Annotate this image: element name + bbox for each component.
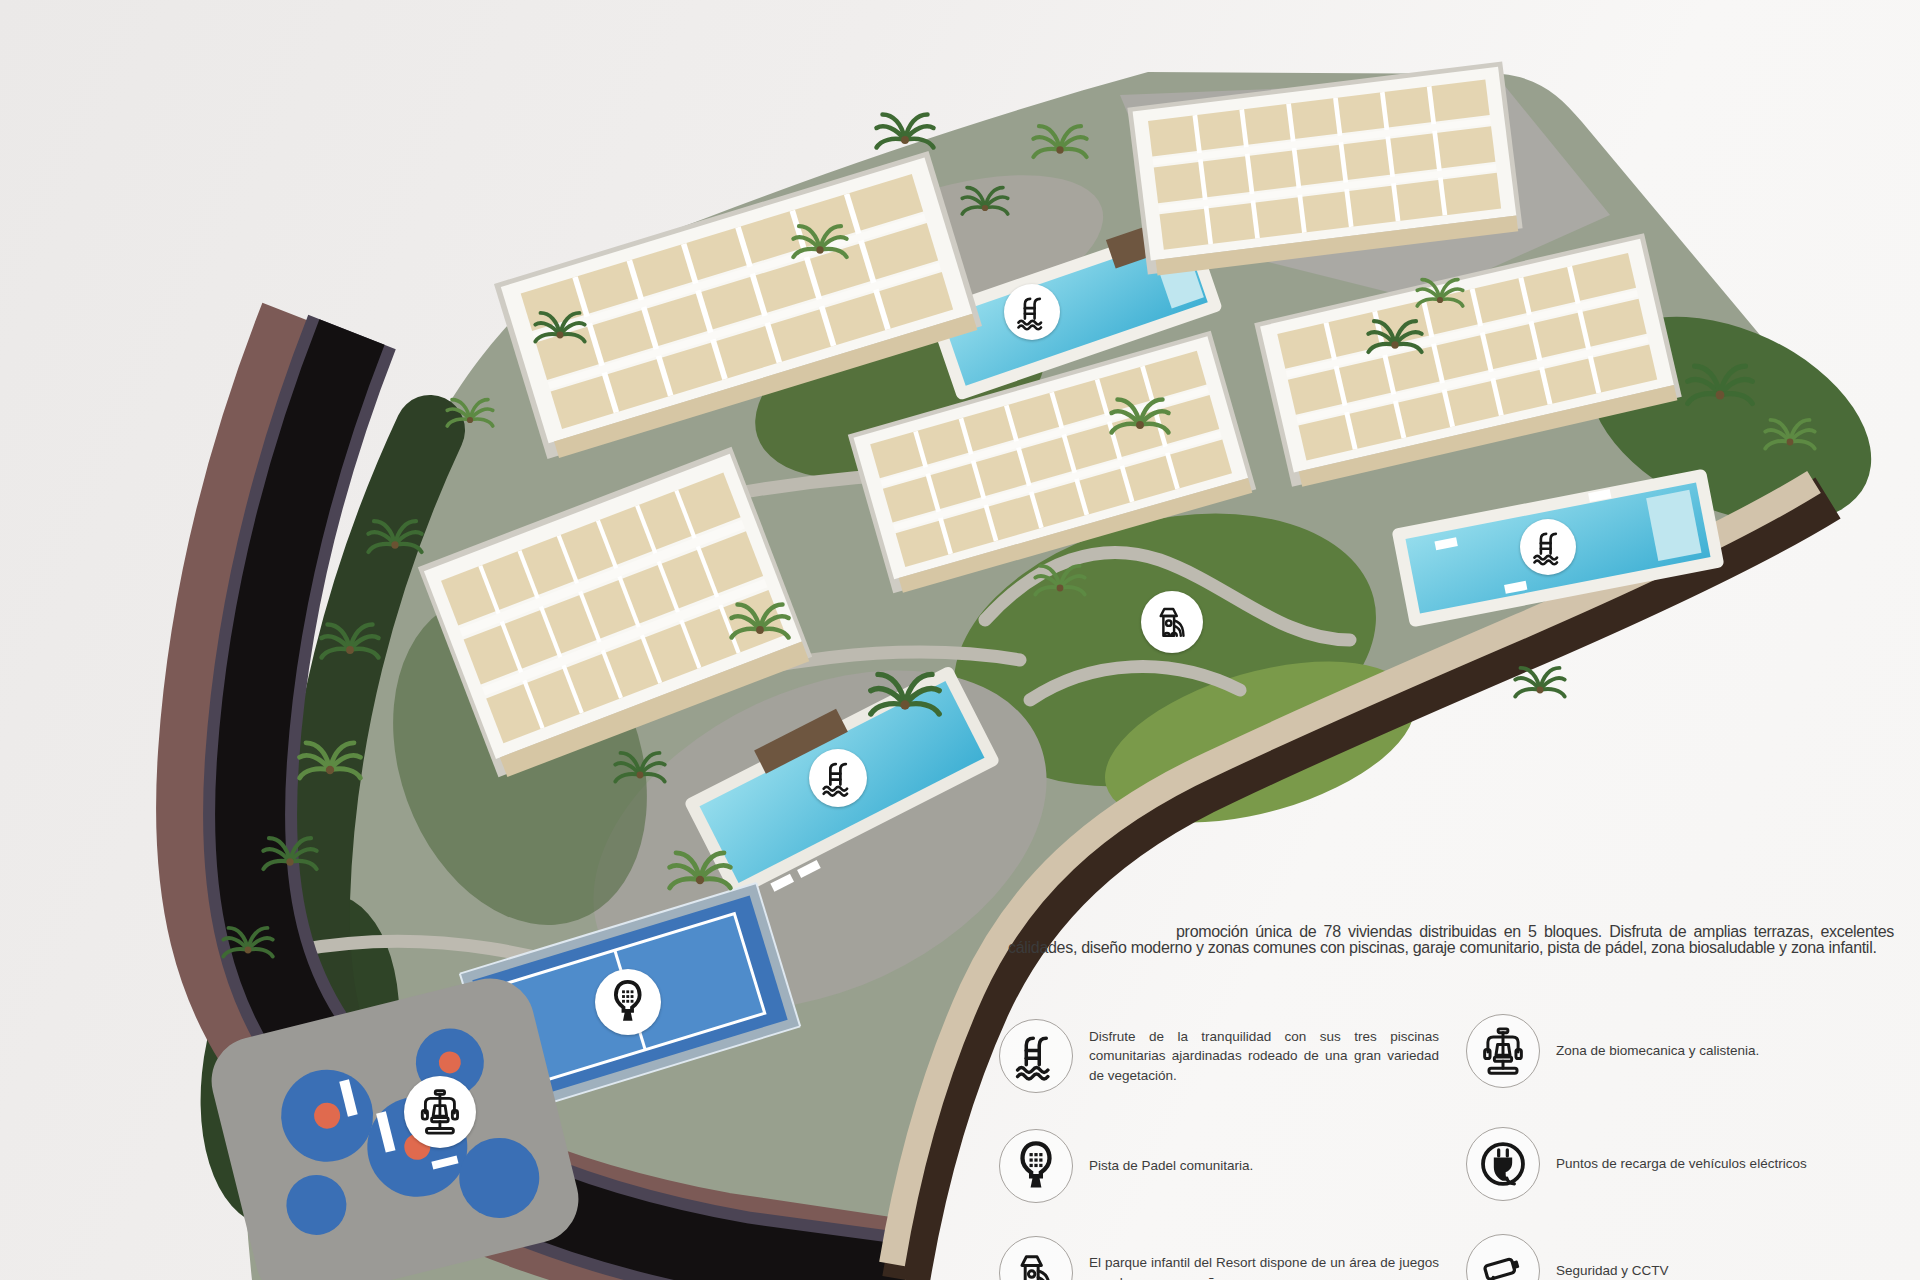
map-badge-biomechanics	[404, 1076, 476, 1148]
cctv-icon	[1466, 1234, 1540, 1280]
legend-item-ev-charging: Puntos de recarga de vehículos eléctrico…	[1466, 1127, 1920, 1201]
legend-item-biomechanics: Zona de biomecanica y calistenia.	[1466, 1014, 1920, 1088]
pool-icon	[1528, 527, 1568, 567]
biomechanics-icon	[1466, 1014, 1540, 1088]
pool-icon	[817, 757, 859, 799]
ev-charging-icon	[1466, 1127, 1540, 1201]
map-badge-pool-east	[1520, 519, 1576, 575]
legend-item-label: El parque infantil del Resort dispone de…	[1089, 1253, 1439, 1280]
legend-item-playground: El parque infantil del Resort dispone de…	[999, 1236, 1439, 1280]
intro-paragraph: promoción única de 78 viviendas distribu…	[1008, 924, 1894, 955]
map-badge-pool-north	[1004, 284, 1060, 340]
legend-item-label: Pista de Padel comunitaria.	[1089, 1156, 1253, 1176]
legend-item-label: Seguridad y CCTV	[1556, 1261, 1669, 1280]
legend-item-cctv: Seguridad y CCTV	[1466, 1234, 1920, 1280]
biomechanics-icon	[414, 1086, 466, 1138]
legend-item-label: Disfrute de la tranquilidad con sus tres…	[1089, 1027, 1439, 1086]
playground-icon	[1150, 600, 1195, 645]
legend-item-pools: Disfrute de la tranquilidad con sus tres…	[999, 1019, 1439, 1093]
legend-item-label: Zona de biomecanica y calistenia.	[1556, 1041, 1759, 1061]
map-badge-pool-west	[809, 749, 867, 807]
padel-icon	[604, 978, 652, 1026]
pool-icon	[999, 1019, 1073, 1093]
playground-icon	[999, 1236, 1073, 1280]
brochure-page: promoción única de 78 viviendas distribu…	[0, 0, 1920, 1280]
legend-item-padel: Pista de Padel comunitaria.	[999, 1129, 1439, 1203]
padel-icon	[999, 1129, 1073, 1203]
legend-item-label: Puntos de recarga de vehículos eléctrico…	[1556, 1154, 1807, 1174]
map-badge-playground	[1141, 591, 1203, 653]
masterplan-render	[0, 0, 1920, 1280]
pool-icon	[1012, 292, 1052, 332]
map-badge-padel	[595, 969, 661, 1035]
